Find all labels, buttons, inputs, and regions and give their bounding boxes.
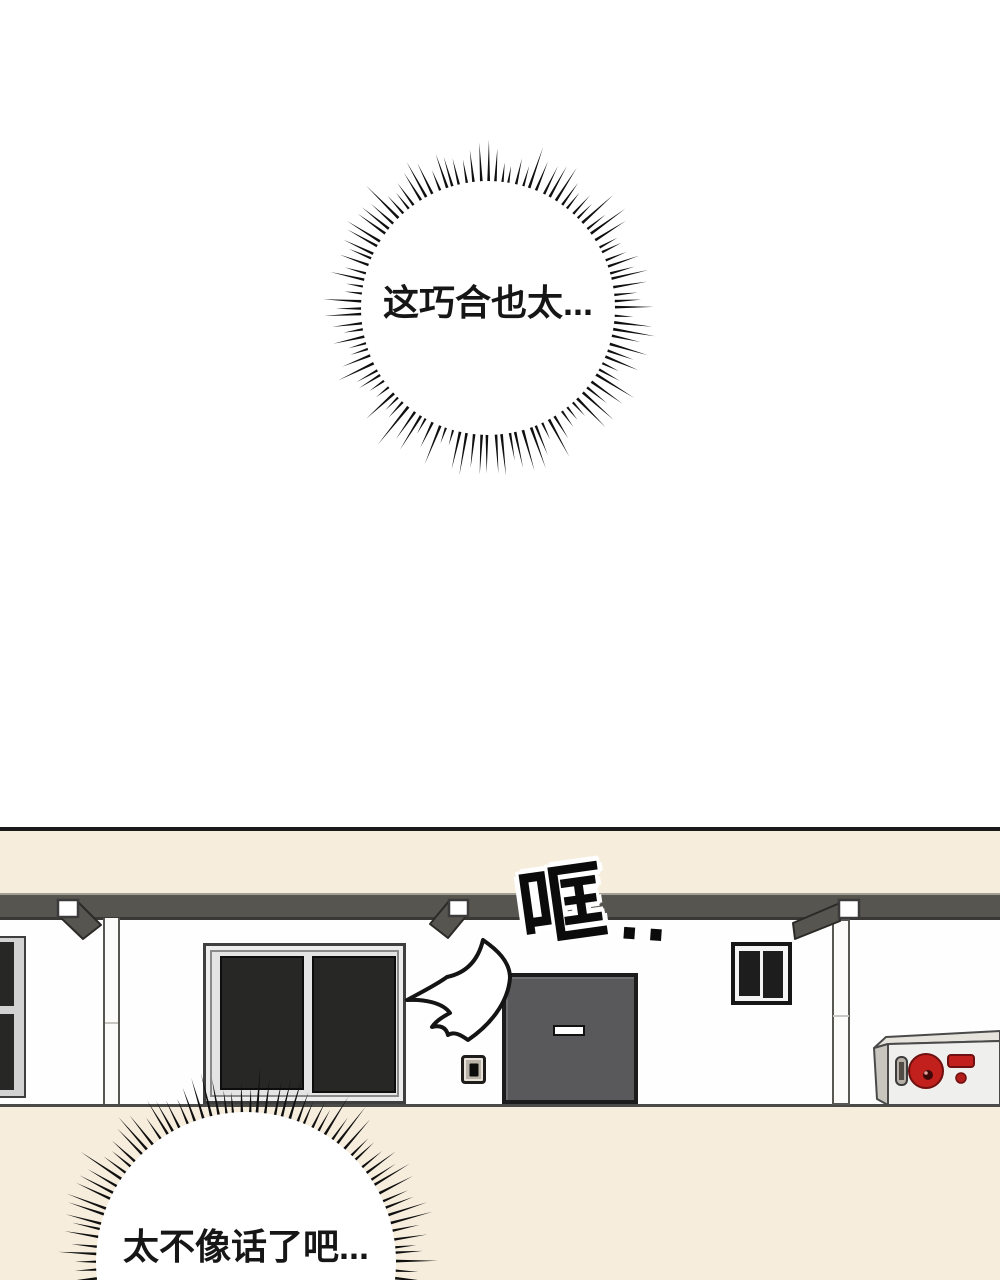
lamp-light xyxy=(839,900,859,918)
sfx-clang-text: 哐 xyxy=(512,856,611,955)
wall-lamp-left xyxy=(58,900,101,939)
bubble-top-text: 这巧合也太... xyxy=(383,274,593,326)
machine-dial-center xyxy=(923,1070,933,1080)
machine-indicator xyxy=(956,1073,966,1083)
lamp-light xyxy=(58,900,78,917)
comic-page: 这巧合也太... xyxy=(0,0,1000,1280)
wall-lamp-middle xyxy=(430,900,468,938)
lamp-light xyxy=(449,900,468,916)
machine-label xyxy=(948,1055,974,1067)
bubble-bottom-text: 太不像话了吧... xyxy=(123,1218,369,1270)
machine-dial-highlight xyxy=(924,1071,928,1075)
machine-side xyxy=(874,1044,888,1105)
vending-machine xyxy=(874,1031,1000,1105)
machine-slot-inner xyxy=(899,1062,904,1080)
lamp-pole xyxy=(833,920,849,1104)
sfx-dots: .. xyxy=(617,872,676,954)
impact-flash-icon xyxy=(407,940,510,1040)
